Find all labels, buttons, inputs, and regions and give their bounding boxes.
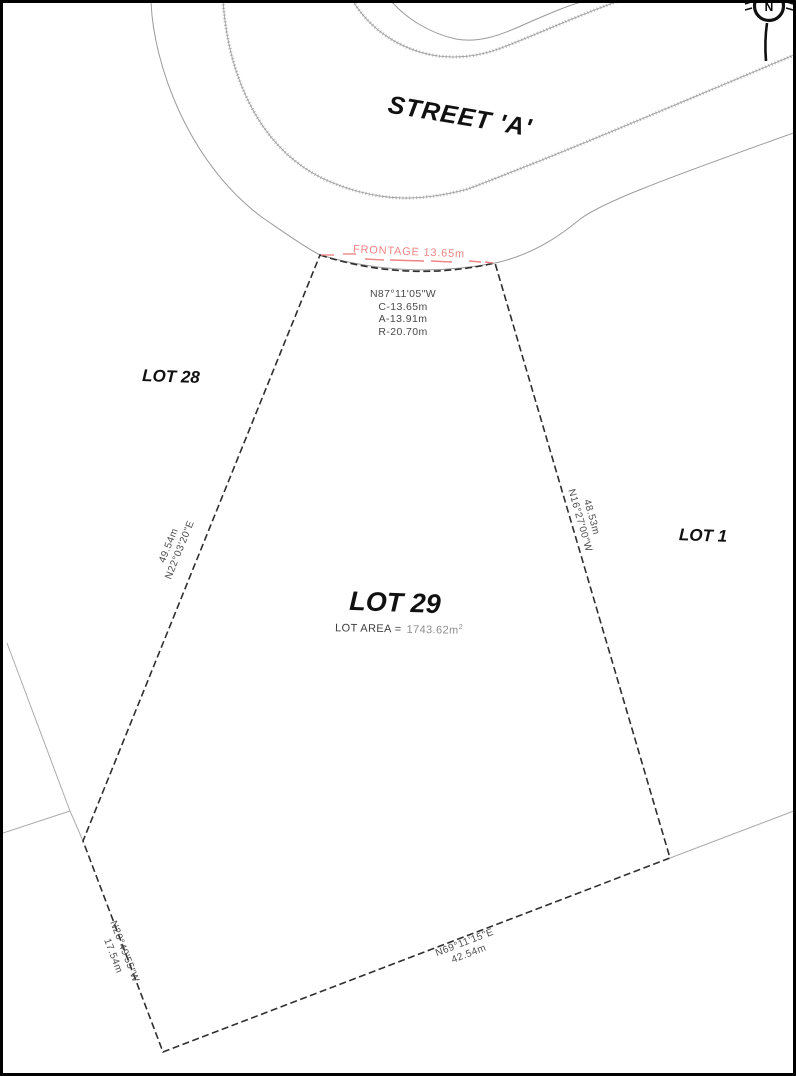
- plan-linework: [3, 3, 796, 1076]
- curve-chord: C-13.65m: [370, 301, 436, 314]
- north-arrow-letter: N: [765, 0, 774, 14]
- lot28-label: LOT 28: [142, 366, 200, 388]
- curve-radius: R-20.70m: [370, 326, 436, 339]
- survey-plan: STREET 'A' N FRONTAGE 13.65m N87°11'05"W…: [0, 0, 796, 1076]
- lot29-area: LOT AREA =1743.62m2: [335, 622, 463, 637]
- lot1-label: LOT 1: [679, 525, 728, 547]
- road-south-curb-line: [223, 3, 796, 198]
- curve-arc: A-13.91m: [370, 313, 436, 326]
- road-north-curb-line: [353, 3, 619, 57]
- lot-area-label: LOT AREA =: [335, 622, 402, 635]
- road-south-row-line: [151, 3, 796, 270]
- curve-data-block: N87°11'05"W C-13.65m A-13.91m R-20.70m: [370, 288, 436, 338]
- lot29-label: LOT 29: [349, 586, 442, 620]
- curve-bearing: N87°11'05"W: [370, 288, 436, 301]
- adjacent-parcel-lines: [3, 643, 796, 858]
- lot-area-exponent: 2: [459, 624, 463, 631]
- road-north-row-line: [391, 3, 585, 40]
- lot-area-value: 1743.62m: [406, 623, 458, 636]
